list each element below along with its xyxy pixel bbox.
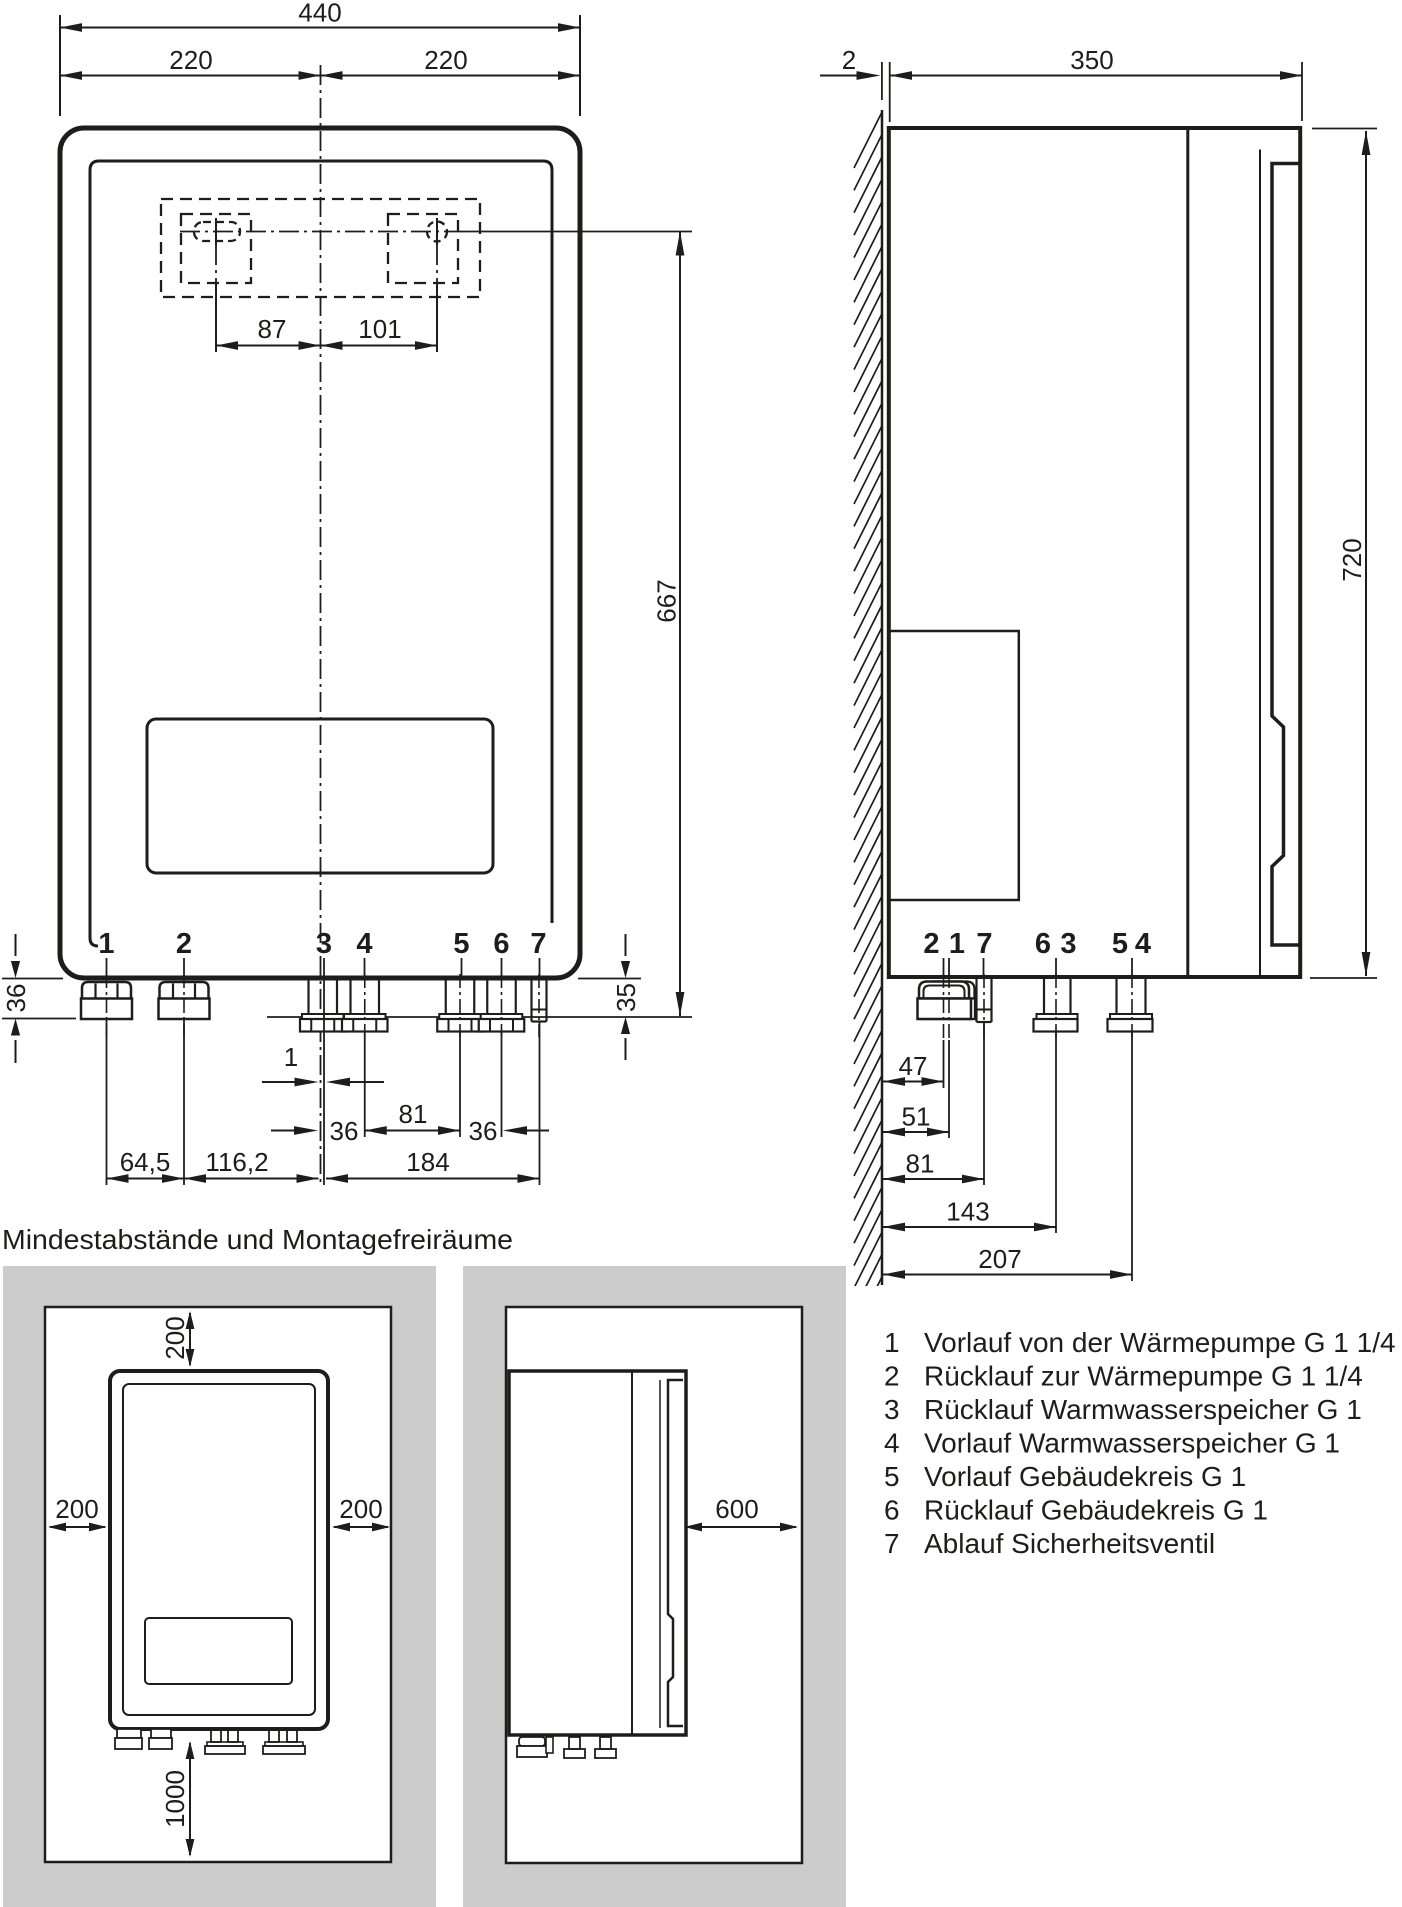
- svg-text:184: 184: [406, 1147, 449, 1177]
- svg-text:6: 6: [493, 928, 509, 960]
- svg-text:5: 5: [1112, 928, 1128, 960]
- svg-text:Mindestabstände und Montagefre: Mindestabstände und Montagefreiräume: [2, 1224, 513, 1255]
- svg-text:200: 200: [339, 1494, 382, 1524]
- svg-text:5: 5: [453, 928, 469, 960]
- svg-text:200: 200: [55, 1494, 98, 1524]
- svg-text:600: 600: [715, 1494, 758, 1524]
- svg-text:Vorlauf von der Wärmepumpe G 1: Vorlauf von der Wärmepumpe G 1 1/4: [924, 1327, 1396, 1358]
- svg-text:1: 1: [884, 1327, 900, 1358]
- svg-text:101: 101: [358, 314, 401, 344]
- svg-text:1: 1: [284, 1042, 298, 1072]
- svg-text:3: 3: [316, 928, 332, 960]
- svg-text:220: 220: [169, 45, 212, 75]
- svg-text:4: 4: [884, 1428, 900, 1459]
- svg-text:200: 200: [160, 1316, 190, 1359]
- svg-text:7: 7: [884, 1528, 900, 1559]
- svg-text:4: 4: [1135, 928, 1151, 960]
- svg-text:2: 2: [176, 928, 192, 960]
- svg-text:2: 2: [884, 1361, 900, 1392]
- svg-text:720: 720: [1337, 538, 1367, 581]
- svg-text:47: 47: [899, 1051, 928, 1081]
- svg-text:1000: 1000: [160, 1770, 190, 1828]
- svg-text:64,5: 64,5: [120, 1147, 171, 1177]
- svg-text:2: 2: [842, 45, 856, 75]
- svg-text:Rücklauf Gebäudekreis G 1: Rücklauf Gebäudekreis G 1: [924, 1495, 1268, 1526]
- svg-text:207: 207: [978, 1244, 1021, 1274]
- svg-text:81: 81: [906, 1149, 935, 1179]
- svg-text:143: 143: [946, 1197, 989, 1227]
- svg-text:1: 1: [949, 928, 965, 960]
- svg-text:4: 4: [356, 928, 372, 960]
- svg-text:3: 3: [1060, 928, 1076, 960]
- svg-text:81: 81: [399, 1099, 428, 1129]
- svg-text:87: 87: [258, 314, 287, 344]
- svg-text:7: 7: [530, 928, 546, 960]
- svg-text:36: 36: [330, 1116, 359, 1146]
- svg-text:2: 2: [923, 928, 939, 960]
- svg-text:440: 440: [298, 0, 341, 28]
- svg-text:667: 667: [652, 579, 682, 622]
- svg-text:51: 51: [902, 1102, 931, 1132]
- svg-text:116,2: 116,2: [205, 1147, 268, 1177]
- svg-text:3: 3: [884, 1394, 900, 1425]
- svg-text:6: 6: [884, 1495, 900, 1526]
- svg-text:Vorlauf Gebäudekreis G 1: Vorlauf Gebäudekreis G 1: [924, 1461, 1246, 1492]
- svg-text:1: 1: [98, 928, 114, 960]
- svg-text:36: 36: [1, 984, 31, 1013]
- svg-text:Rücklauf Warmwasserspeicher G: Rücklauf Warmwasserspeicher G 1: [924, 1394, 1362, 1425]
- svg-text:7: 7: [976, 928, 992, 960]
- svg-text:Vorlauf Warmwasserspeicher G 1: Vorlauf Warmwasserspeicher G 1: [924, 1428, 1340, 1459]
- svg-text:Rücklauf zur Wärmepumpe G 1 1/: Rücklauf zur Wärmepumpe G 1 1/4: [924, 1361, 1363, 1392]
- svg-text:36: 36: [469, 1116, 498, 1146]
- svg-text:Ablauf Sicherheitsventil: Ablauf Sicherheitsventil: [924, 1528, 1215, 1559]
- svg-text:220: 220: [424, 45, 467, 75]
- svg-text:6: 6: [1035, 928, 1051, 960]
- svg-text:350: 350: [1070, 45, 1113, 75]
- svg-text:5: 5: [884, 1461, 900, 1492]
- svg-text:35: 35: [611, 983, 641, 1012]
